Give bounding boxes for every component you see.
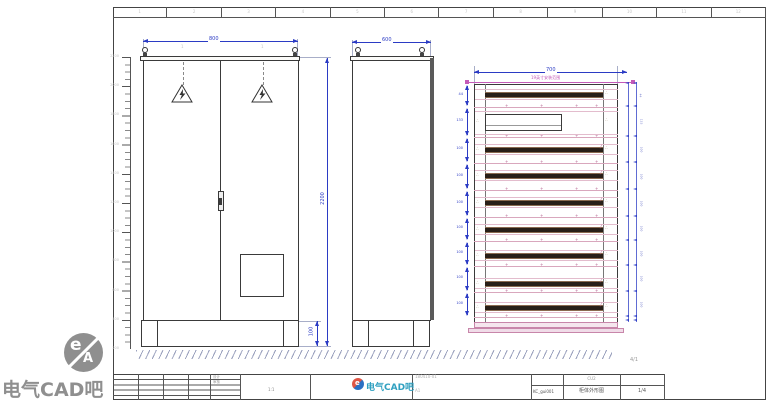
dim-arrow [315,341,319,346]
ruler-label: 2000 [104,84,119,88]
dim-arrow [465,184,469,189]
titleblock-logo-icon: e [352,378,364,390]
separator-plus-mark: + [575,187,578,191]
rack-device-bar [485,281,603,287]
separator-plus-mark: + [595,214,598,218]
rack-device-bar [485,92,603,98]
centerline [183,62,184,85]
ruler-label: 2200 [104,55,119,59]
scale-value: 1:1 [268,388,274,392]
dim-arrow [426,40,431,44]
separator-plus-mark: + [575,214,578,218]
row-dim-label: 44 [450,93,463,97]
row-dim-label: 100 [450,226,463,230]
chain-tick [625,82,629,84]
dim-arrow [465,311,469,316]
row-dim-label: 100 [450,201,463,205]
panel-edge-line [475,302,618,303]
mount-dots: ∴ [605,172,608,176]
ruler-label: 400 [104,318,119,322]
separator-plus-mark: + [575,289,578,293]
chain-dim-label: 44 [638,93,641,97]
zone-cell: 6 [385,7,439,17]
plinth-divider [157,320,158,347]
plinth-divider [368,320,369,347]
chain-dim-label: 100 [639,250,642,256]
lifting-eye-base [143,53,147,56]
chain-tick [633,239,637,241]
zone-strip-line [113,17,766,18]
panel-edge-line [475,234,618,235]
doc-code: 180410-01 [415,375,437,379]
dim-arrow [465,242,469,247]
ruler-label: 600 [104,289,119,293]
separator-plus-mark: + [595,263,598,267]
front-width-dim-label: 800 [208,37,220,42]
panel-edge-line [475,154,618,155]
chain-dim-label: 100 [639,200,642,206]
titleblock-row-line [531,385,665,386]
dim-arrow [465,85,469,90]
chain-tick [633,264,637,266]
mount-dots: ∴ [605,118,608,122]
mount-dots: ∴ [476,200,479,204]
dim-arrow [465,267,469,272]
titleblock-logo-text: 电气CAD吧 [366,380,414,393]
lifting-eye-base [356,53,360,56]
zone-cell: 1 [113,7,167,17]
ruler-label: 1400 [104,172,119,176]
chain-tick [625,319,629,321]
chain-tick [625,315,629,317]
lifting-eye-base [293,53,297,56]
separator-plus-mark: + [505,314,508,318]
panel-edge-line [475,260,618,261]
separator-plus-mark: + [540,214,543,218]
mount-dots: ∴ [605,304,608,308]
separator-plus-mark: + [505,289,508,293]
zone-cell: 3 [222,7,276,17]
dim-arrow [465,260,469,265]
rack-device-bar [485,200,603,206]
chain-tick [625,239,629,241]
row-dim-label: 100 [450,174,463,178]
zone-reference: 4/1 [630,358,638,363]
dim-arrow [352,40,357,44]
rack-device-bar [485,253,603,259]
check-label: 审核 [213,381,220,385]
separator-plus-mark: + [505,104,508,108]
rev-code: A1 [415,389,420,393]
dim-arrow [465,131,469,136]
revision-grid-rows [113,375,240,400]
separator-plus-mark: + [540,263,543,267]
chain-dim-label: 100 [639,276,642,282]
dim-arrow [474,70,479,74]
separator-plus-mark: + [540,160,543,164]
dim-arrow [465,138,469,143]
chain-tick [625,105,629,107]
separator-plus-mark: + [540,104,543,108]
rack-device-box [485,114,562,131]
door-lock [219,198,222,205]
rack-base-plate [468,328,624,333]
chain-dim-label: 100 [639,226,642,232]
separator-plus-mark: + [505,263,508,267]
titleblock-divider [531,374,532,400]
dim-arrow [465,211,469,216]
chain-tick [633,82,637,84]
row-dim-label: 100 [450,251,463,255]
zone-cell: 8 [494,7,548,17]
cad-drawing-sheet: e A 电气CAD吧 800 1 1 2200 [0,0,768,407]
chain-dim-label: 100 [639,173,642,179]
device-box-inner-line [486,125,561,126]
dim-arrow [325,58,329,63]
separator-plus-mark: + [505,214,508,218]
dim-extension-line [299,346,331,347]
plinth-divider [283,320,284,347]
rack-device-bar [485,147,603,153]
mount-dots: ∴ [476,281,479,285]
ruler-label: 1200 [104,201,119,205]
dim-arrow [325,341,329,346]
rail-dim-label: 19英寸安装范围 [530,76,561,80]
panel-edge-line [475,134,618,135]
ruler-label: 800 [104,259,119,263]
dim-chain-line [628,84,629,322]
separator-plus-mark: + [540,314,543,318]
separator-plus-mark: + [540,238,543,242]
chain-tick [633,161,637,163]
panel-edge-line [475,144,618,145]
mount-dots: ∴ [605,280,608,284]
separator-plus-mark: + [575,314,578,318]
watermark-logo-e: e [70,335,82,355]
zone-cell: 12 [712,7,766,17]
watermark-logo: e A [64,333,103,372]
mount-dots: ∴ [605,199,608,203]
cabinet-side-outline [352,60,431,321]
chain-dim-label: 133 [639,119,642,125]
ruler-label: 1600 [104,143,119,147]
side-width-dim-label: 600 [381,38,393,43]
mount-dots: ∴ [605,91,608,95]
side-plinth [352,320,430,347]
titleblock-logo-e: e [355,379,360,387]
panel-edge-line [475,180,618,181]
callout-label: 1 [261,45,264,49]
ruler-line [130,57,131,349]
zone-cell: 5 [331,7,385,17]
ruler-label: 200 [104,347,119,351]
zone-cell: 10 [603,7,657,17]
titleblock-divider [138,374,139,400]
rail-dim-line [466,82,634,83]
dim-arrow [465,108,469,113]
chain-tick [625,215,629,217]
ruler-label: 1800 [104,113,119,117]
front-width-dim-line [143,41,298,42]
drawing-number: KC_gui001 [533,390,554,394]
row-dim-label: 133 [450,119,463,123]
titleblock-divider [210,374,211,400]
door-window [240,254,284,297]
separator-plus-mark: + [595,289,598,293]
chain-tick [625,290,629,292]
mount-dots: ∴ [605,226,608,230]
chain-tick [633,215,637,217]
chain-tick [633,319,637,321]
separator-plus-mark: + [595,104,598,108]
dim-arrow [465,164,469,169]
row-dim-label: 100 [450,276,463,280]
cabinet-plinth [141,320,299,347]
separator-plus-mark: + [575,238,578,242]
plinth-dim-label: 100 [309,326,314,338]
separator-plus-mark: + [595,187,598,191]
panel-edge-line [475,111,618,112]
chain-tick [625,135,629,137]
chain-tick [625,264,629,266]
rack-device-bar [485,227,603,233]
cell-code: CU2 [563,377,620,381]
ground-hatch [136,350,612,359]
separator-plus-mark: + [575,263,578,267]
rail-dim-end [465,80,469,84]
panel-edge-line [475,207,618,208]
ruler-major-ticks [122,57,130,349]
panel-edge-line [475,170,618,171]
chain-dim-label: 100 [639,147,642,153]
chain-tick [633,315,637,317]
separator-plus-mark: + [540,289,543,293]
chain-tick [625,161,629,163]
titleblock-divider [310,374,311,400]
titleblock-divider [163,374,164,400]
separator-plus-mark: + [505,187,508,191]
chain-tick [625,188,629,190]
panel-edge-line [475,99,618,100]
chain-tick [633,290,637,292]
dim-arrow [465,293,469,298]
dim-arrow [465,286,469,291]
hazard-triangle-icon [251,84,273,103]
panel-edge-line [475,197,618,198]
front-height-dim-line [327,58,328,346]
side-door-slab [430,58,434,320]
titleblock-divider [188,374,189,400]
drawing-title: 柜体外形图 [563,389,620,394]
hazard-triangle-icon [171,84,193,103]
dim-arrow [465,101,469,106]
separator-plus-mark: + [575,160,578,164]
mount-dots: ∴ [605,146,608,150]
titleblock-divider [620,374,621,400]
lifting-eye-base [420,53,424,56]
dim-arrow [622,70,627,74]
separator-plus-mark: + [505,160,508,164]
zone-cell: 7 [440,7,494,17]
chain-tick [633,188,637,190]
dim-chain-line [636,84,637,322]
panel-edge-line [475,288,618,289]
mount-dots: ∴ [476,119,479,123]
titleblock-divider [664,374,665,400]
mount-dots: ∴ [476,253,479,257]
callout-label: 1 [181,45,184,49]
rack-width-dim-label: 700 [545,68,557,73]
plinth-divider [413,320,414,347]
separator-plus-mark: + [505,238,508,242]
chain-tick [633,105,637,107]
panel-edge-line [475,224,618,225]
mount-dots: ∴ [476,305,479,309]
dim-arrow [465,235,469,240]
centerline [263,62,264,85]
separator-plus-mark: + [595,238,598,242]
rack-device-bar [485,305,603,311]
chain-tick [633,135,637,137]
watermark-text: 电气CAD吧 [2,375,103,402]
ruler-label: 1000 [104,230,119,234]
chain-dim-label: 100 [639,301,642,307]
page-number: 1/4 [620,389,664,394]
mount-dots: ∴ [476,173,479,177]
mount-dots: ∴ [476,227,479,231]
zone-cell: 11 [657,7,711,17]
dim-arrow [465,191,469,196]
panel-edge-line [475,89,618,90]
separator-plus-mark: + [595,160,598,164]
dim-arrow [293,39,298,43]
watermark-logo-a: A [83,351,93,366]
titleblock-divider [240,374,241,400]
design-label: 设计 [213,376,220,380]
front-height-dim-label: 2200 [321,191,326,206]
rack-device-bar [485,173,603,179]
zone-cell: 4 [276,7,330,17]
zone-cell: 2 [167,7,221,17]
dim-arrow [315,321,319,326]
row-dim-label: 100 [450,302,463,306]
dim-arrow [465,218,469,223]
panel-edge-line [475,312,618,313]
dim-arrow [143,39,148,43]
separator-plus-mark: + [540,187,543,191]
zone-cell: 9 [548,7,602,17]
mount-dots: ∴ [605,252,608,256]
mount-dots: ∴ [476,147,479,151]
separator-plus-mark: + [575,104,578,108]
row-dim-label: 100 [450,147,463,151]
panel-edge-line [475,250,618,251]
panel-edge-line [475,278,618,279]
separator-plus-mark: + [595,314,598,318]
dim-arrow [465,157,469,162]
